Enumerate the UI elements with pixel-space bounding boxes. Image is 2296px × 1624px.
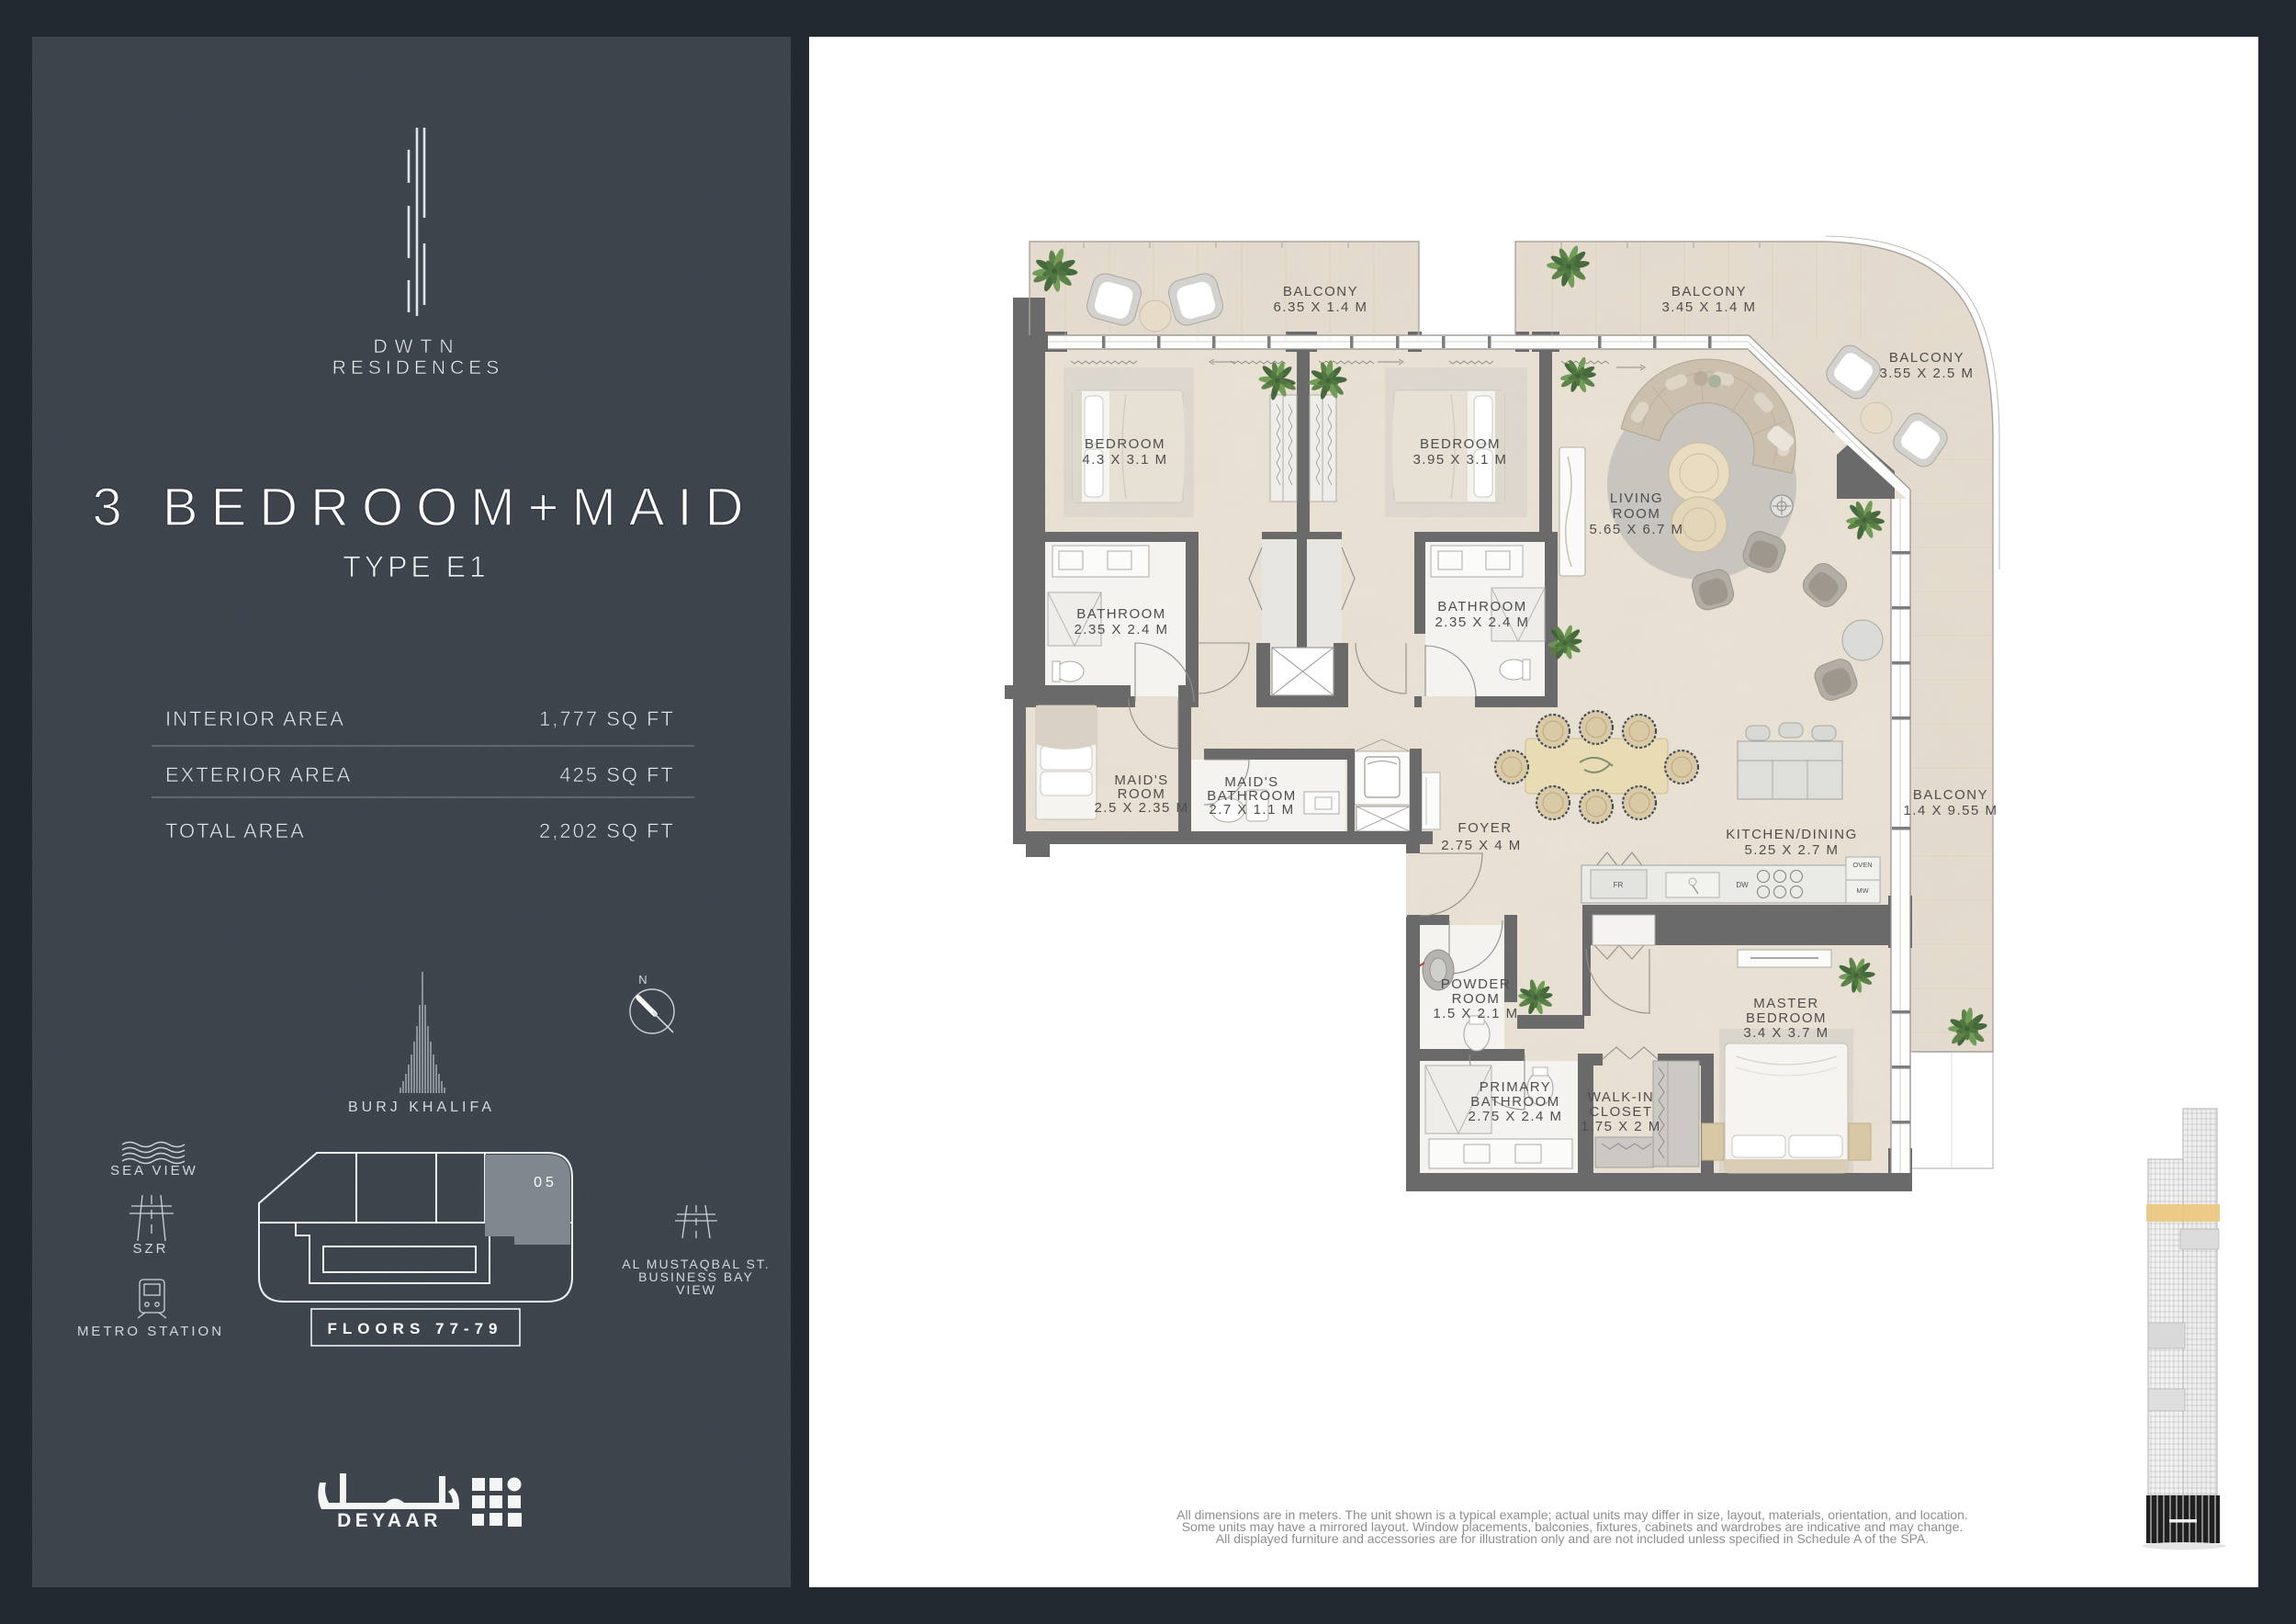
svg-text:RESIDENCES: RESIDENCES	[332, 357, 504, 378]
svg-text:TYPE E1: TYPE E1	[343, 550, 490, 583]
svg-text:POWDER: POWDER	[1441, 976, 1512, 992]
svg-text:2.5 X 2.35 M: 2.5 X 2.35 M	[1094, 800, 1188, 816]
svg-text:BATHROOM: BATHROOM	[1470, 1094, 1560, 1110]
svg-text:2.35 X 2.4 M: 2.35 X 2.4 M	[1074, 622, 1168, 637]
svg-text:2,202 SQ FT: 2,202 SQ FT	[539, 819, 675, 842]
svg-text:All displayed furniture and ac: All displayed furniture and accessories …	[1216, 1531, 1929, 1546]
svg-text:BEDROOM: BEDROOM	[1420, 436, 1501, 452]
svg-text:1.5 X 2.1 M: 1.5 X 2.1 M	[1433, 1006, 1518, 1021]
svg-text:SZR: SZR	[133, 1241, 169, 1257]
svg-text:2.75 X 2.4 M: 2.75 X 2.4 M	[1468, 1109, 1562, 1124]
svg-text:BEDROOM: BEDROOM	[1746, 1010, 1827, 1026]
svg-text:BALCONY: BALCONY	[1913, 787, 1988, 803]
svg-text:CLOSET: CLOSET	[1589, 1104, 1652, 1120]
svg-text:MW: MW	[1856, 886, 1869, 895]
svg-text:2.7 X 1.1 M: 2.7 X 1.1 M	[1209, 802, 1294, 818]
svg-text:BATHROOM: BATHROOM	[1076, 606, 1166, 622]
svg-text:BEDROOM: BEDROOM	[1085, 436, 1165, 452]
svg-text:FOYER: FOYER	[1458, 820, 1512, 836]
svg-text:5.25 X 2.7 M: 5.25 X 2.7 M	[1744, 842, 1839, 858]
svg-text:BALCONY: BALCONY	[1671, 284, 1747, 299]
svg-text:BATHROOM: BATHROOM	[1437, 599, 1527, 615]
svg-text:3.4 X 3.7 M: 3.4 X 3.7 M	[1743, 1025, 1829, 1041]
svg-text:TOTAL AREA: TOTAL AREA	[165, 819, 306, 842]
svg-text:KITCHEN/DINING: KITCHEN/DINING	[1726, 827, 1858, 842]
svg-text:5.65 X 6.7 M: 5.65 X 6.7 M	[1589, 522, 1683, 537]
svg-text:4.3 X 3.1 M: 4.3 X 3.1 M	[1082, 452, 1167, 468]
svg-text:BALCONY: BALCONY	[1283, 284, 1358, 299]
svg-text:3 BEDROOM+MAID: 3 BEDROOM+MAID	[93, 478, 757, 537]
svg-text:DW: DW	[1736, 881, 1749, 889]
svg-text:DWTN: DWTN	[374, 336, 461, 357]
svg-text:3.45 X 1.4 M: 3.45 X 1.4 M	[1661, 299, 1756, 315]
svg-text:ROOM: ROOM	[1452, 991, 1501, 1007]
svg-text:FR: FR	[1614, 881, 1624, 889]
svg-text:2.75 X 4 M: 2.75 X 4 M	[1441, 838, 1522, 853]
svg-text:3.55 X 2.5 M: 3.55 X 2.5 M	[1879, 366, 1974, 381]
svg-text:2.35 X 2.4 M: 2.35 X 2.4 M	[1435, 615, 1529, 630]
svg-text:LIVING: LIVING	[1610, 491, 1663, 506]
svg-text:ROOM: ROOM	[1613, 506, 1661, 522]
svg-text:MASTER: MASTER	[1753, 996, 1819, 1011]
svg-text:SEA VIEW: SEA VIEW	[110, 1163, 198, 1179]
svg-text:BURJ KHALIFA: BURJ KHALIFA	[348, 1100, 495, 1115]
svg-text:EXTERIOR AREA: EXTERIOR AREA	[165, 763, 352, 786]
svg-text:INTERIOR AREA: INTERIOR AREA	[165, 707, 345, 730]
svg-text:1,777 SQ FT: 1,777 SQ FT	[539, 707, 675, 730]
svg-text:05: 05	[534, 1175, 557, 1190]
svg-text:3.95 X 3.1 M: 3.95 X 3.1 M	[1412, 452, 1507, 468]
svg-text:1.4 X 9.55 M: 1.4 X 9.55 M	[1903, 803, 1998, 818]
svg-text:PRIMARY: PRIMARY	[1480, 1079, 1552, 1095]
svg-text:BALCONY: BALCONY	[1889, 350, 1964, 366]
svg-text:WALK-IN: WALK-IN	[1588, 1089, 1654, 1105]
svg-text:N: N	[638, 973, 647, 987]
svg-text:FLOORS 77-79: FLOORS 77-79	[327, 1320, 502, 1337]
svg-text:425 SQ FT: 425 SQ FT	[559, 763, 675, 786]
svg-text:VIEW: VIEW	[676, 1282, 716, 1297]
svg-text:1.75 X 2 M: 1.75 X 2 M	[1581, 1119, 1661, 1134]
svg-text:6.35 X 1.4 M: 6.35 X 1.4 M	[1273, 299, 1367, 315]
svg-text:METRO STATION: METRO STATION	[77, 1324, 224, 1339]
svg-text:OVEN: OVEN	[1852, 861, 1872, 869]
svg-text:DEYAAR: DEYAAR	[337, 1510, 442, 1531]
